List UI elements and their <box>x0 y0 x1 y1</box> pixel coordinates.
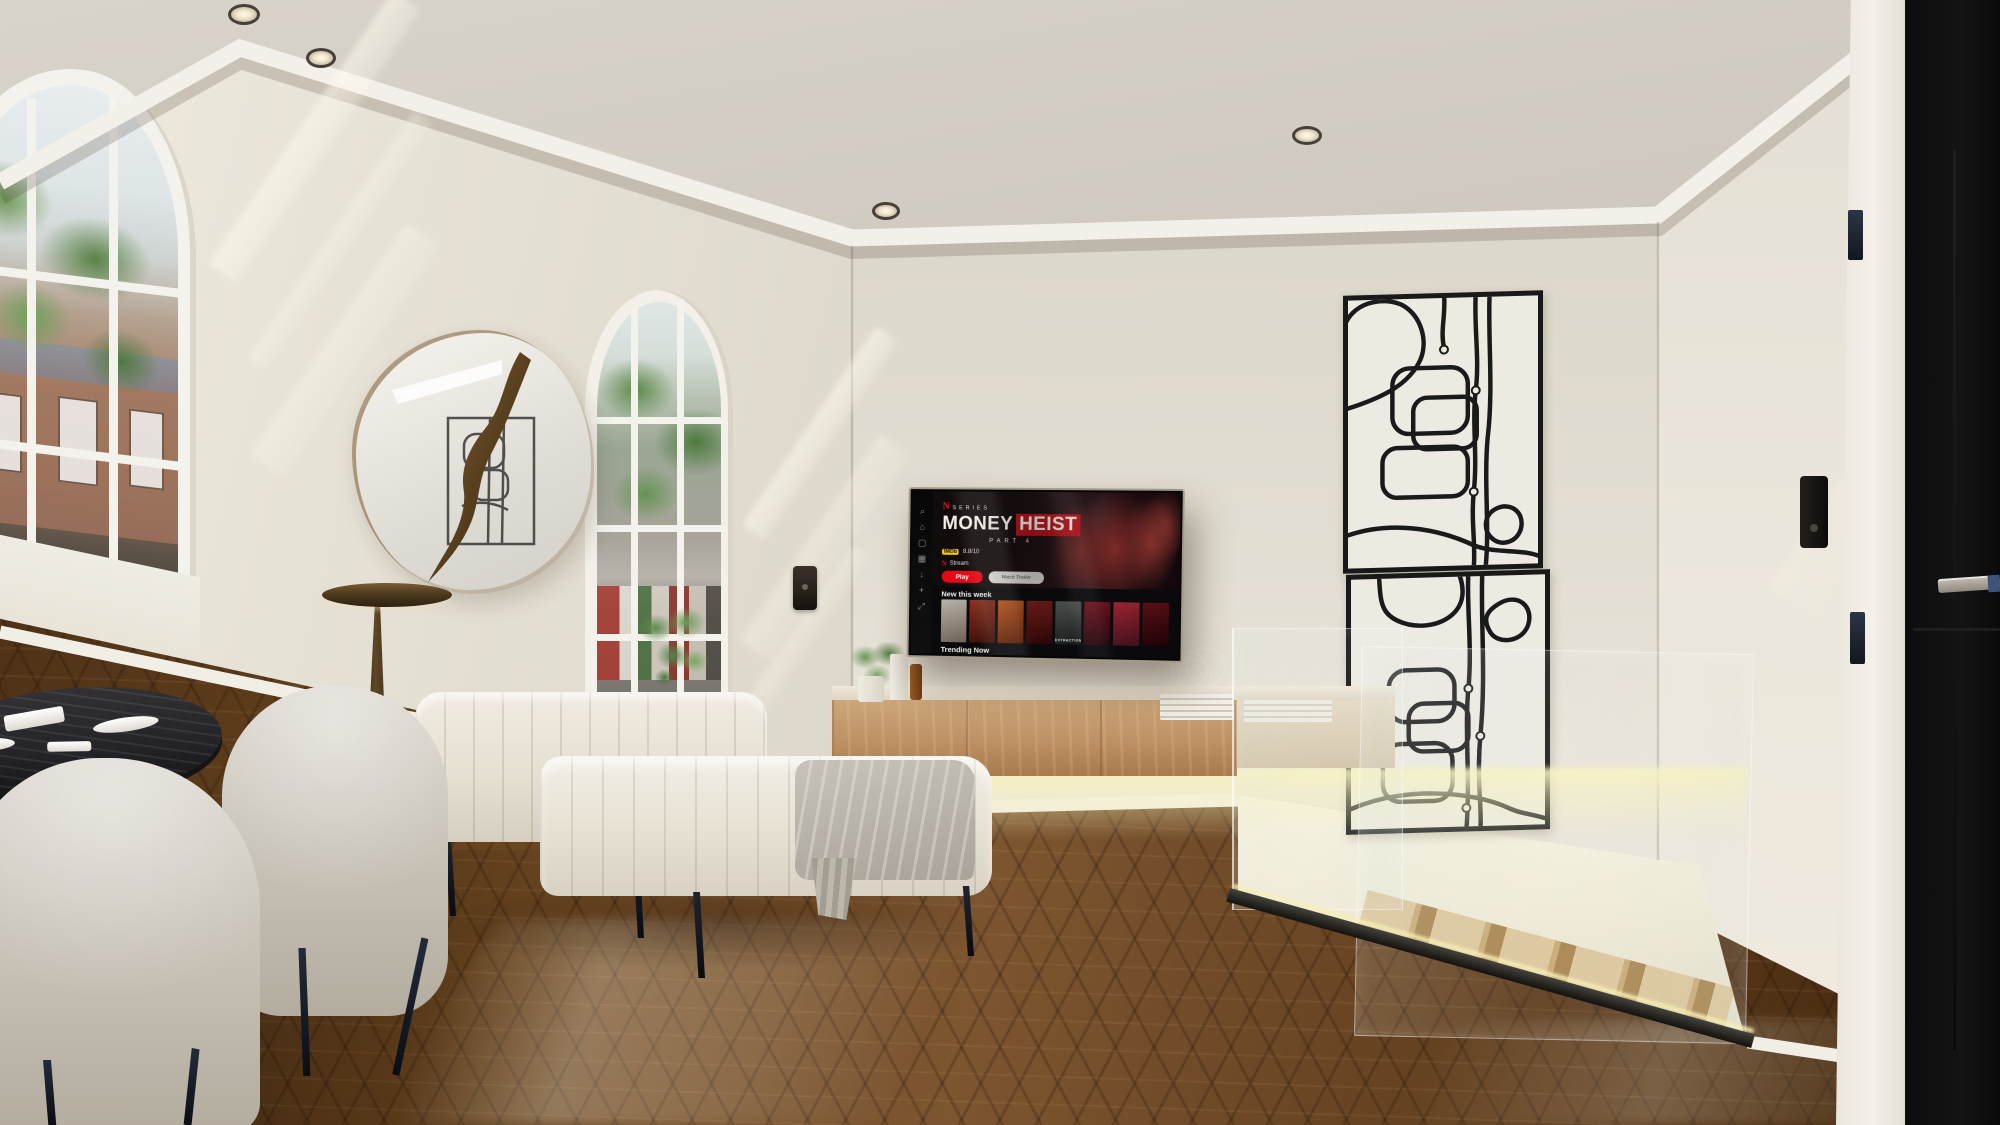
art-drawing <box>1348 295 1538 568</box>
title-heist: HEIST <box>1016 514 1080 537</box>
categories-icon[interactable]: ▦ <box>918 554 926 563</box>
hero-buttons: Play Watch Trailer <box>942 571 1044 584</box>
rating-row: IMDb 8.8/10 <box>942 549 979 555</box>
poster-thumbnail[interactable] <box>1113 602 1140 646</box>
wall-mounted-tv[interactable]: ⌕⌂▢▦↓+⤢ N SERIES MONEY HEIST PART 4 IMDb… <box>907 487 1185 663</box>
light-switch[interactable] <box>1800 476 1828 548</box>
poster-thumbnail[interactable] <box>998 600 1024 643</box>
door-panel-groove <box>1913 628 2000 631</box>
ceiling-spotlight <box>228 4 260 25</box>
poster-thumbnail[interactable] <box>1142 603 1169 647</box>
living-room-render: ⌕⌂▢▦↓+⤢ N SERIES MONEY HEIST PART 4 IMDb… <box>0 0 2000 1125</box>
poster-thumbnail[interactable] <box>969 600 995 643</box>
door-hinge <box>1850 612 1865 664</box>
dinner-plate <box>92 713 159 736</box>
poster-thumbnail[interactable] <box>1084 602 1111 646</box>
tv-screen: ⌕⌂▢▦↓+⤢ N SERIES MONEY HEIST PART 4 IMDb… <box>910 491 1180 659</box>
amber-bottle <box>910 664 922 700</box>
home-icon[interactable]: ⌂ <box>920 523 925 532</box>
watch-trailer-button[interactable]: Watch Trailer <box>989 571 1044 584</box>
wire-ring <box>1178 659 1212 693</box>
ceiling-spotlight <box>1292 126 1322 145</box>
mirror-reflection <box>352 330 594 594</box>
poster-thumbnail[interactable] <box>941 599 967 642</box>
netflix-n-icon: N <box>942 560 947 568</box>
my-list-icon[interactable]: + <box>919 586 924 595</box>
abstract-line-art-top <box>1343 290 1543 574</box>
poster-thumbnail[interactable] <box>1112 657 1139 658</box>
dining-chair <box>0 758 260 1125</box>
switch-knob <box>802 584 808 590</box>
poster-thumbnail[interactable] <box>1083 657 1110 659</box>
stream-label: Stream <box>950 561 969 567</box>
poster-thumbnail[interactable] <box>1054 656 1081 659</box>
imdb-badge-icon: IMDb <box>942 549 959 555</box>
netflix-brand-row: N SERIES <box>943 501 991 512</box>
ceiling-spotlight <box>872 202 900 220</box>
shows-icon[interactable]: ▢ <box>918 539 926 548</box>
poster-title: EXTRACTION <box>1055 638 1081 643</box>
diffuser-box <box>890 654 908 700</box>
show-subtitle: PART 4 <box>989 538 1033 544</box>
title-money: MONEY <box>942 513 1013 536</box>
downloads-icon[interactable]: ↓ <box>919 570 923 579</box>
stream-row: N Stream <box>942 560 969 568</box>
tv-row-new: EXTRACTION <box>941 599 1169 646</box>
light-switch[interactable] <box>793 566 817 610</box>
search-icon[interactable]: ⌕ <box>920 507 925 516</box>
series-label: SERIES <box>953 505 990 511</box>
netflix-n-icon: N <box>943 501 950 512</box>
door-hinge <box>1848 210 1863 260</box>
folded-napkin <box>47 741 91 752</box>
poster-thumbnail[interactable] <box>997 655 1023 659</box>
tv-browse-page: N SERIES MONEY HEIST PART 4 IMDb 8.8/10 … <box>931 491 1181 659</box>
imdb-rating: 8.8/10 <box>963 549 979 555</box>
poster-thumbnail[interactable]: EXTRACTION <box>1055 601 1082 645</box>
poster-thumbnail[interactable] <box>968 654 994 658</box>
folded-napkin <box>3 706 65 732</box>
black-entry-door[interactable] <box>1905 0 2000 1125</box>
show-title: MONEY HEIST <box>942 513 1080 536</box>
plant-pot <box>858 676 884 702</box>
tv-sidebar: ⌕⌂▢▦↓+⤢ <box>910 491 933 654</box>
switch-knob <box>1810 524 1818 532</box>
poster-thumbnail[interactable] <box>1026 601 1052 644</box>
play-button[interactable]: Play <box>942 571 983 584</box>
handle-glint <box>1987 575 2000 593</box>
row-label-new-this-week: New this week <box>941 589 991 599</box>
door-panel-groove <box>1953 150 1956 1050</box>
floor-lamp-disc <box>322 583 452 607</box>
organic-wall-mirror <box>352 330 594 594</box>
poster-thumbnail[interactable] <box>1025 656 1051 659</box>
tv-row-trending <box>940 654 1139 659</box>
expand-icon[interactable]: ⤢ <box>918 602 925 611</box>
ceiling-spotlight <box>306 48 336 68</box>
dinner-plate <box>0 736 15 753</box>
